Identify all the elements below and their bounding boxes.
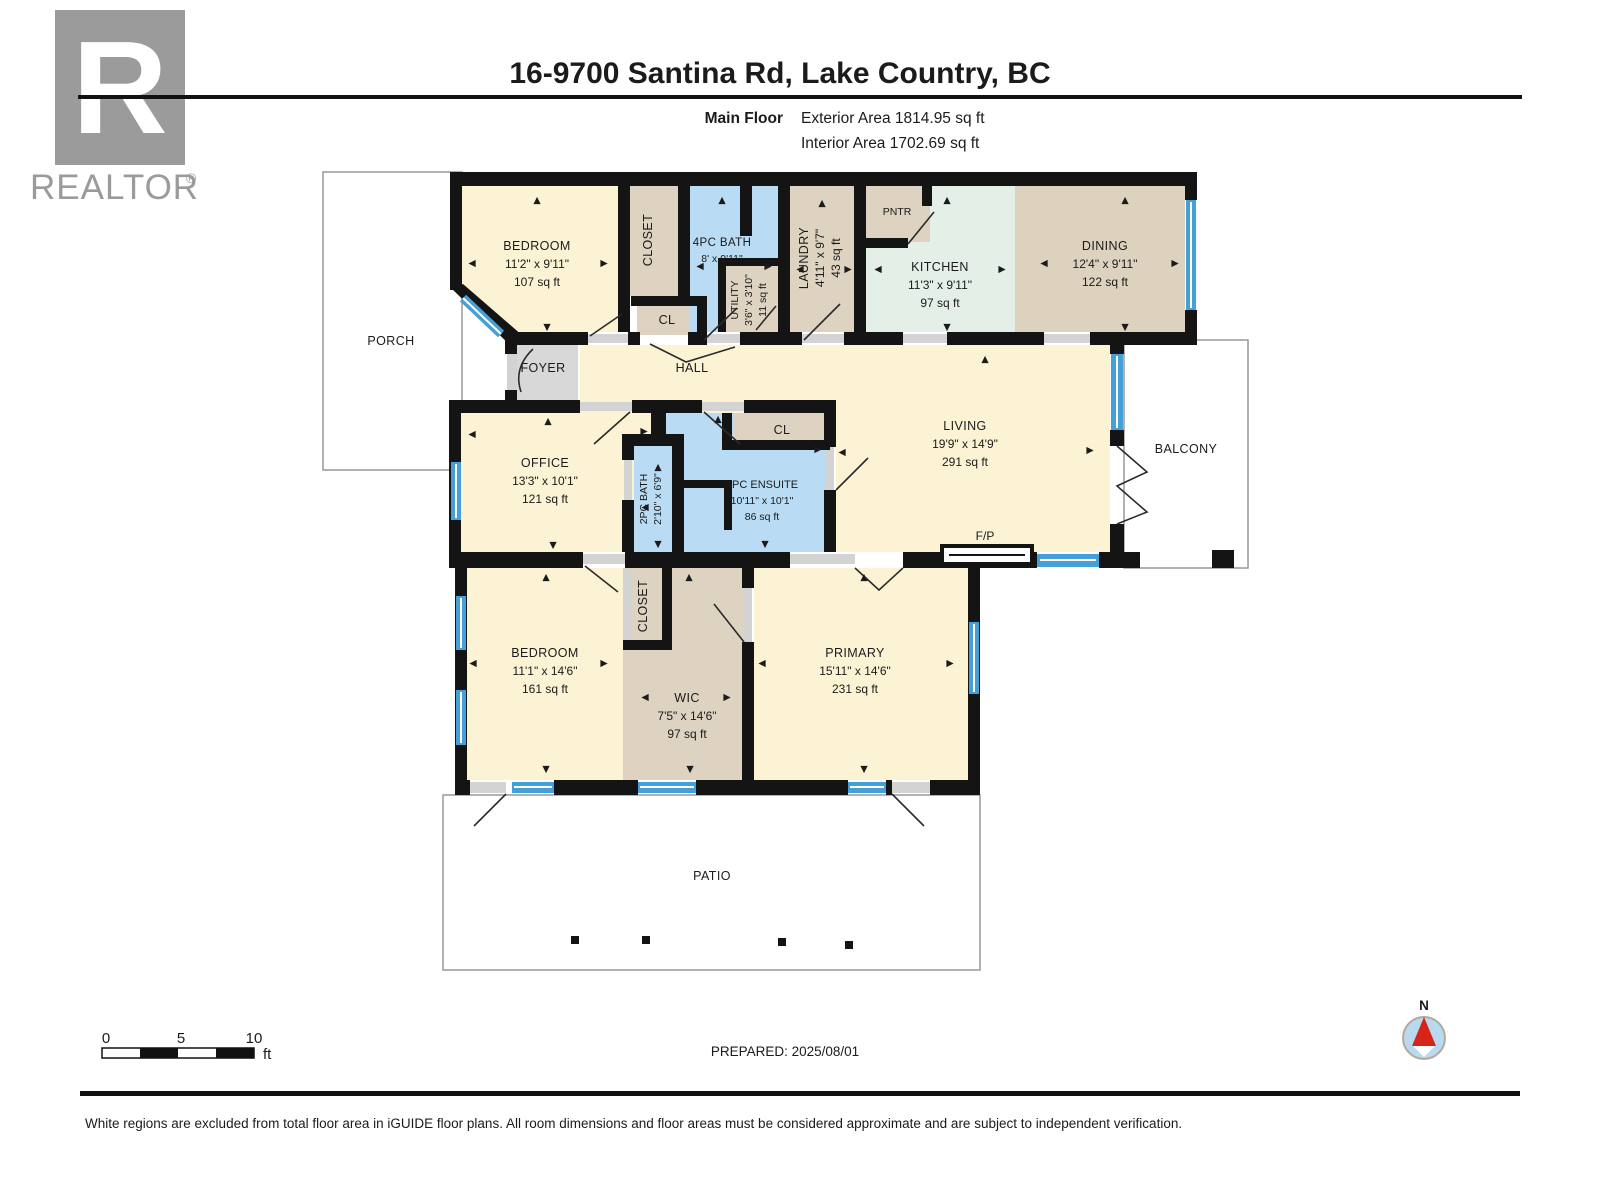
wall-segment [742, 642, 754, 780]
wall-segment [922, 186, 932, 206]
scale-tick-5: 5 [177, 1030, 185, 1047]
patio-post [642, 936, 650, 944]
balcony-post [1212, 550, 1234, 568]
arrow-icon: ▼ [549, 540, 557, 551]
wall-segment [1185, 186, 1197, 200]
arrow-icon: ▲ [533, 195, 541, 206]
arrow-icon: ▶ [946, 658, 954, 669]
room-label-balcony: BALCONY [1155, 442, 1218, 456]
primary-door-sill [790, 554, 855, 564]
footer-rule [80, 1091, 1520, 1096]
wall-segment [450, 172, 1197, 186]
wall-segment [824, 490, 836, 552]
room-label-bath4: 4PC BATH [693, 237, 752, 249]
room-label-living: LIVING [943, 419, 986, 433]
room-dims-bath2: 2'10" x 6'9" [652, 473, 664, 525]
kitchen-living-opening-sill [1044, 334, 1090, 343]
arrow-icon: ▲ [654, 462, 662, 473]
wall-segment [625, 552, 790, 568]
wall-segment [505, 342, 517, 354]
patio-post [571, 936, 579, 944]
patio-door-right-sill [892, 782, 930, 793]
room-area-ensuite: 86 sq ft [745, 511, 780, 523]
room-label-closet-top: CLOSET [641, 214, 655, 266]
arrow-icon: ◀ [468, 258, 476, 269]
scale-bar-fill [140, 1048, 178, 1058]
arrow-icon: ▲ [685, 572, 693, 583]
arrow-icon: ▲ [943, 195, 951, 206]
wall-segment [1110, 345, 1124, 354]
arrow-icon: ▲ [714, 414, 722, 425]
scale-bar-fill [216, 1048, 254, 1058]
interior-area: Interior Area 1702.69 sq ft [801, 135, 980, 152]
wall-segment [632, 400, 702, 413]
wall-segment [618, 186, 630, 332]
arrow-icon: ▶ [640, 426, 648, 437]
room-dims-living: 19'9" x 14'9" [932, 437, 998, 451]
arrow-icon: ▲ [860, 572, 868, 583]
arrow-icon: ◀ [1040, 258, 1048, 269]
wall-segment [622, 446, 634, 460]
patio-post [845, 941, 853, 949]
arrow-icon: ▼ [1121, 322, 1129, 333]
arrow-icon: ▼ [654, 539, 662, 550]
arrow-icon: ▲ [544, 416, 552, 427]
wall-segment [622, 434, 684, 446]
wall-segment [554, 780, 638, 795]
wall-segment [672, 446, 684, 552]
arrow-icon: ◀ [838, 447, 846, 458]
arrow-icon: ▶ [814, 444, 822, 455]
wall-segment [662, 568, 672, 648]
title-rule [78, 95, 1522, 99]
disclaimer: White regions are excluded from total fl… [85, 1116, 1182, 1131]
arrow-icon: ◀ [874, 264, 882, 275]
wall-segment [1090, 332, 1197, 345]
fireplace [942, 546, 1032, 564]
arrow-icon: ◀ [641, 692, 649, 703]
arrow-icon: ◀ [758, 658, 766, 669]
room-label-ensuite: 4PC ENSUITE [726, 479, 798, 491]
compass-north-label: N [1419, 998, 1429, 1013]
bedroom-top-door-sill [588, 334, 628, 343]
wall-segment [450, 186, 462, 290]
room-area-bedroom-top: 107 sq ft [514, 275, 561, 289]
wall-segment [623, 640, 672, 650]
room-label-primary: PRIMARY [825, 646, 885, 660]
wall-segment [740, 186, 752, 236]
scale-unit: ft [263, 1046, 272, 1063]
room-label-bedroom-top: BEDROOM [503, 239, 570, 253]
wall-segment [449, 400, 580, 413]
arrow-icon: ◀ [469, 658, 477, 669]
logo-brand: REALTOR [30, 168, 199, 207]
wall-segment [886, 780, 892, 795]
room-dims-bedroom-top: 11'2" x 9'11" [505, 257, 569, 271]
room-label-hall: HALL [676, 361, 709, 375]
wall-segment [947, 332, 1044, 345]
ensuite-door-sill [702, 402, 744, 411]
floorplan-page: R REALTOR ® 16-9700 Santina Rd, Lake Cou… [0, 0, 1600, 1200]
arrow-icon: ▲ [542, 572, 550, 583]
kitchen-opening-sill [903, 334, 947, 343]
patio-door-left-sill [470, 782, 506, 793]
wic-door-sill [744, 588, 752, 642]
compass: N [1403, 998, 1445, 1059]
patio-post [778, 938, 786, 946]
wall-segment [449, 552, 583, 568]
wall-segment [824, 413, 836, 447]
room-dims-ensuite: 10'11" x 10'1" [731, 495, 794, 507]
room-dims-office: 13'3" x 10'1" [512, 474, 578, 488]
room-label-laundry: LAUNDRY [797, 227, 811, 290]
wall-segment [930, 780, 980, 795]
room-dims-wic: 7'5" x 14'6" [657, 709, 716, 723]
arrow-icon: ▼ [542, 764, 550, 775]
wall-segment [744, 400, 836, 413]
room-label-fireplace: F/P [976, 529, 995, 543]
room-label-closet-bottom: CLOSET [636, 580, 650, 632]
room-dims-primary: 15'11" x 14'6" [819, 664, 891, 678]
room-area-laundry: 43 sq ft [829, 238, 843, 278]
arrow-icon: ▶ [764, 261, 772, 272]
room-area-kitchen: 97 sq ft [920, 296, 960, 310]
room-area-utility: 11 sq ft [757, 283, 769, 317]
arrow-icon: ▲ [1121, 195, 1129, 206]
wall-segment [678, 186, 690, 298]
wall-segment [505, 332, 588, 345]
arrow-icon: ▶ [844, 264, 852, 275]
wall-segment [742, 568, 754, 588]
arrow-icon: ◀ [468, 429, 476, 440]
logo: R REALTOR ® [30, 10, 199, 207]
room-area-living: 291 sq ft [942, 455, 989, 469]
room-label-cl-top: CL [659, 313, 676, 327]
wall-segment [622, 500, 634, 552]
scale-tick-0: 0 [102, 1030, 110, 1047]
floorplan-canvas: R REALTOR ® 16-9700 Santina Rd, Lake Cou… [0, 0, 1600, 1200]
arrow-icon: ▶ [600, 658, 608, 669]
room-area-primary: 231 sq ft [832, 682, 879, 696]
wall-segment [854, 186, 866, 332]
room-area-wic: 97 sq ft [667, 727, 707, 741]
arrow-icon: ▼ [943, 322, 951, 333]
bath2-door-sill [624, 460, 632, 500]
arrow-icon: ▲ [818, 198, 826, 209]
floor-label: Main Floor [705, 110, 783, 127]
wall-segment [628, 332, 640, 345]
room-label-bedroom-bottom: BEDROOM [511, 646, 578, 660]
room-area-bedroom-bottom: 161 sq ft [522, 682, 569, 696]
wall-segment [866, 238, 908, 248]
room-label-kitchen: KITCHEN [911, 260, 969, 274]
closet-bottom-opening [623, 570, 632, 640]
room-area-office: 121 sq ft [522, 492, 569, 506]
wall-segment [740, 332, 802, 345]
arrow-icon: ▶ [1171, 258, 1179, 269]
bedroom-bottom-door-sill [583, 554, 625, 564]
arrow-icon: ▼ [543, 322, 551, 333]
logo-registered: ® [186, 170, 197, 186]
exterior-area: Exterior Area 1814.95 sq ft [801, 110, 985, 127]
room-label-dining: DINING [1082, 239, 1128, 253]
prepared-date: PREPARED: 2025/08/01 [711, 1044, 859, 1059]
room-label-pantry: PNTR [883, 206, 912, 218]
wall-segment [684, 480, 732, 488]
arrow-icon: ▶ [998, 264, 1006, 275]
wall-segment [455, 780, 470, 795]
room-area-dining: 122 sq ft [1082, 275, 1129, 289]
wall-segment [844, 332, 903, 345]
front-door-sill [507, 352, 517, 392]
room-label-wic: WIC [674, 691, 700, 705]
arrow-icon: ▶ [723, 692, 731, 703]
room-label-office: OFFICE [521, 456, 569, 470]
room-dims-bedroom-bottom: 11'1" x 14'6" [513, 664, 578, 678]
room-label-patio: PATIO [693, 869, 731, 883]
wall-segment [631, 296, 703, 306]
wall-segment [1110, 430, 1124, 446]
room-dims-bath4: 8' x 9'11" [701, 253, 743, 265]
room-label-utility: UTILITY [729, 280, 741, 319]
wall-segment [696, 780, 848, 795]
arrow-icon: ▶ [600, 258, 608, 269]
room-dims-utility: 3'6" x 3'10" [743, 274, 755, 326]
arrow-icon: ▲ [718, 195, 726, 206]
porch-area [323, 172, 462, 470]
logo-letter: R [72, 14, 167, 161]
room-dims-laundry: 4'11" x 9'7" [813, 229, 827, 287]
scale-bar: 0 5 10 ft [102, 1030, 272, 1063]
room-dims-kitchen: 11'3" x 9'11" [908, 278, 972, 292]
arrow-icon: ▼ [761, 539, 769, 550]
page-title: 16-9700 Santina Rd, Lake Country, BC [509, 57, 1050, 90]
room-label-porch: PORCH [367, 334, 414, 348]
wall-segment [1110, 524, 1124, 568]
arrow-icon: ▼ [686, 764, 694, 775]
room-label-foyer: FOYER [520, 361, 565, 375]
office-door-sill [580, 402, 632, 411]
arrow-icon: ▼ [860, 764, 868, 775]
arrow-icon: ▲ [981, 354, 989, 365]
room-label-cl-ensuite: CL [774, 423, 791, 437]
ensuite-living-door-sill [826, 447, 834, 490]
scale-tick-10: 10 [246, 1030, 263, 1047]
room-dims-dining: 12'4" x 9'11" [1073, 257, 1138, 271]
arrow-icon: ▶ [1086, 445, 1094, 456]
room-label-bath2: 2PC BATH [638, 474, 650, 525]
